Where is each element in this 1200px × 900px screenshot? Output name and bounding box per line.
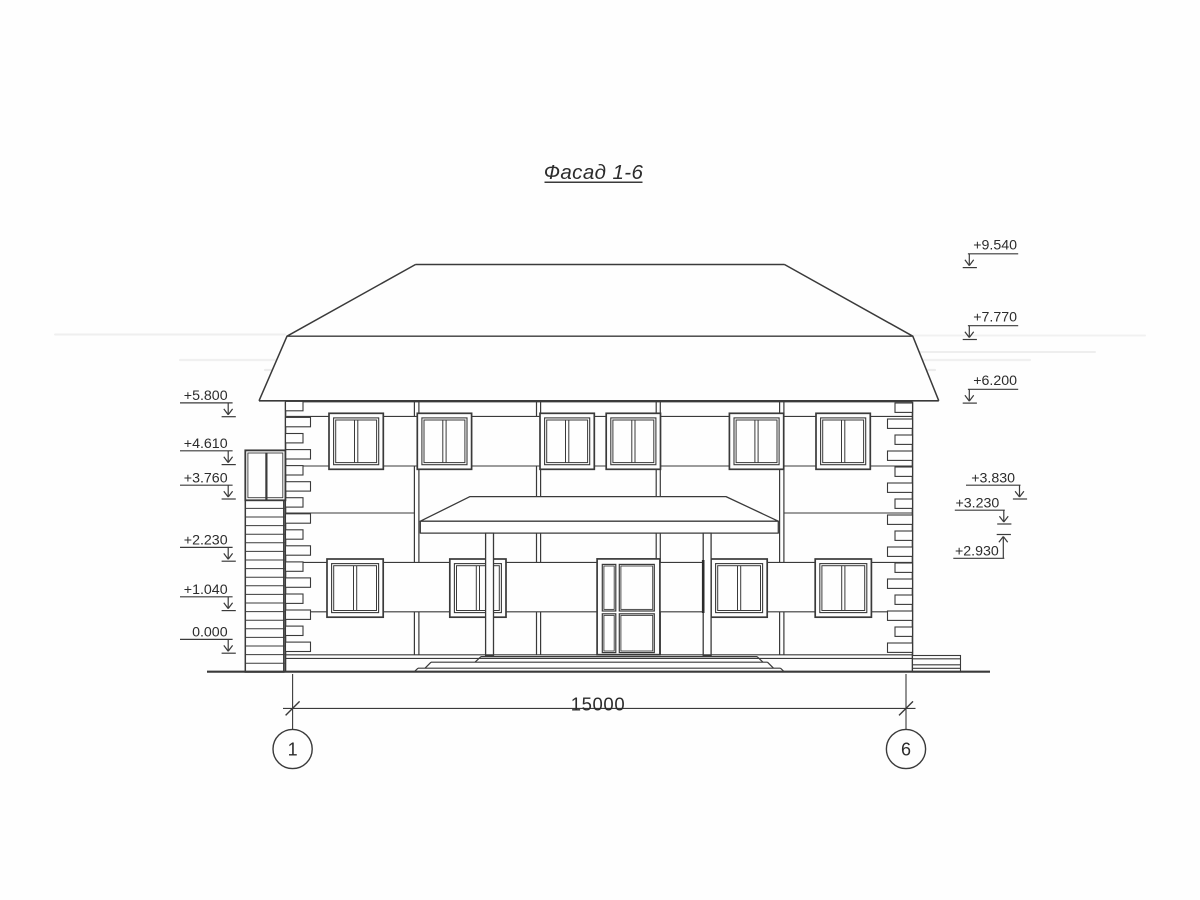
svg-text:+3.760: +3.760 — [184, 470, 228, 486]
svg-text:1: 1 — [288, 740, 298, 760]
svg-text:0.000: 0.000 — [192, 625, 228, 641]
svg-text:6: 6 — [901, 740, 911, 760]
svg-text:+3.830: +3.830 — [971, 470, 1015, 486]
svg-text:+3.230: +3.230 — [956, 495, 1000, 511]
svg-text:+7.770: +7.770 — [973, 310, 1017, 326]
svg-text:+2.930: +2.930 — [955, 544, 999, 560]
svg-text:+4.610: +4.610 — [184, 436, 228, 452]
svg-text:+5.800: +5.800 — [184, 388, 228, 404]
svg-text:Фасад 1-6: Фасад 1-6 — [544, 161, 644, 184]
svg-text:+2.230: +2.230 — [184, 533, 228, 549]
svg-text:15000: 15000 — [571, 694, 625, 715]
svg-text:+9.540: +9.540 — [973, 238, 1017, 254]
svg-text:+1.040: +1.040 — [184, 582, 228, 598]
svg-text:+6.200: +6.200 — [973, 373, 1017, 389]
